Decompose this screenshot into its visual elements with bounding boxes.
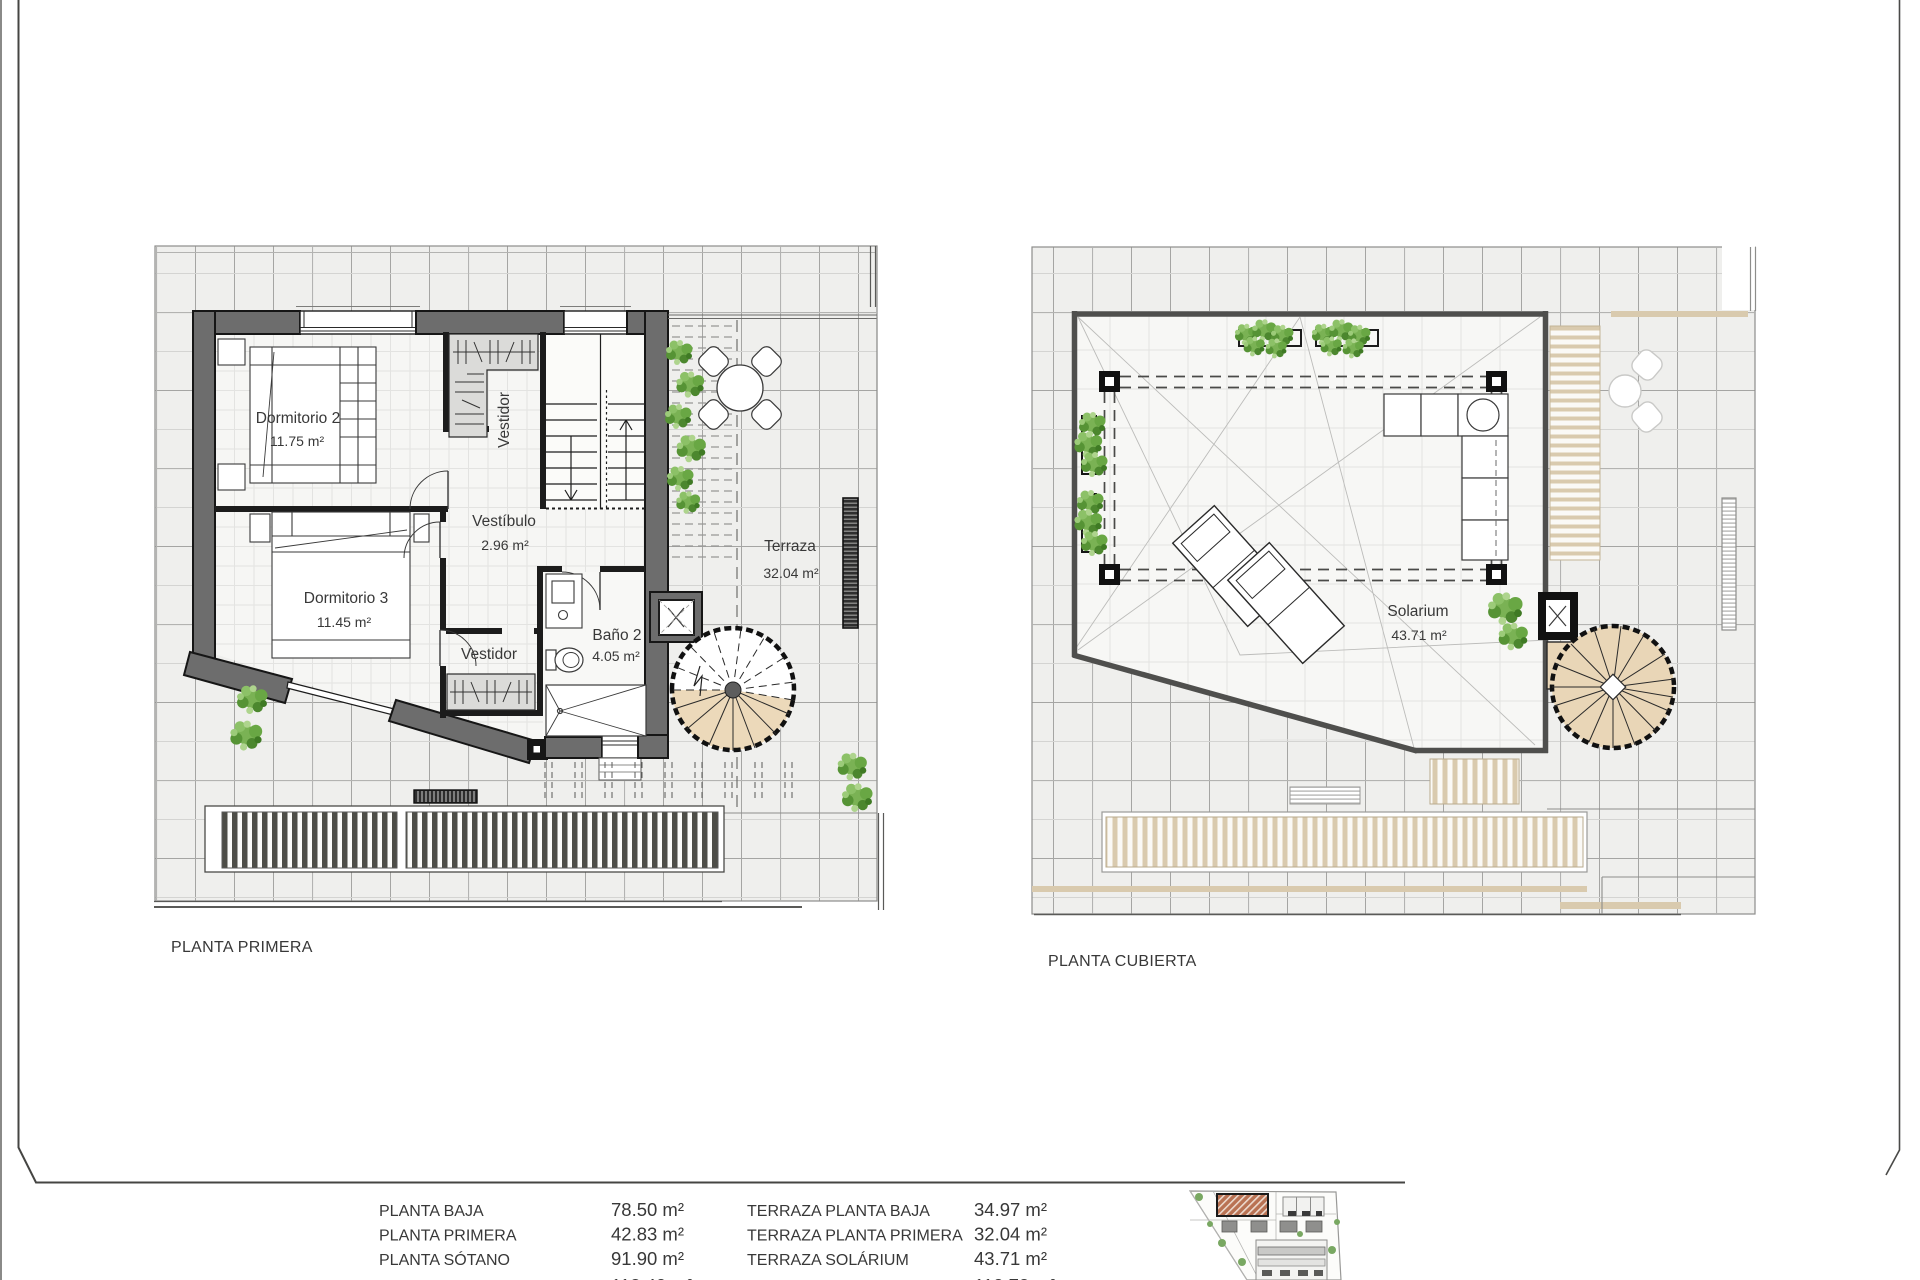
svg-text:32.04 m²: 32.04 m²: [974, 1224, 1047, 1245]
svg-text:PLANTA CUBIERTA: PLANTA CUBIERTA: [1048, 953, 1197, 970]
svg-text:43.71 m²: 43.71 m²: [974, 1248, 1047, 1269]
svg-text:34.97 m²: 34.97 m²: [974, 1199, 1047, 1220]
svg-text:11.75 m²: 11.75 m²: [270, 433, 325, 449]
svg-text:Dormitorio 2: Dormitorio 2: [256, 410, 340, 427]
svg-text:113.40 m²: 113.40 m²: [611, 1275, 693, 1280]
svg-text:42.83 m²: 42.83 m²: [611, 1224, 684, 1245]
svg-text:11.45 m²: 11.45 m²: [317, 614, 372, 630]
svg-text:Vestidor: Vestidor: [496, 392, 513, 448]
svg-text:TERRAZA PLANTA BAJA: TERRAZA PLANTA BAJA: [747, 1203, 930, 1220]
svg-text:32.04 m²: 32.04 m²: [763, 565, 819, 581]
svg-text:78.50 m²: 78.50 m²: [611, 1199, 684, 1220]
svg-text:91.90 m²: 91.90 m²: [611, 1248, 684, 1269]
svg-text:2.96 m²: 2.96 m²: [481, 537, 529, 553]
svg-text:4.05 m²: 4.05 m²: [592, 648, 640, 664]
svg-text:Baño 2: Baño 2: [592, 627, 641, 644]
svg-text:PLANTA BAJA: PLANTA BAJA: [379, 1203, 484, 1220]
svg-text:TERRAZA SOLÁRIUM: TERRAZA SOLÁRIUM: [747, 1250, 909, 1269]
svg-text:Dormitorio 3: Dormitorio 3: [304, 590, 388, 607]
svg-text:Vestíbulo: Vestíbulo: [472, 513, 536, 530]
svg-text:43.71 m²: 43.71 m²: [1391, 627, 1447, 643]
svg-text:Terraza: Terraza: [764, 538, 816, 555]
svg-text:Vestidor: Vestidor: [461, 646, 517, 663]
svg-text:110.72 m²: 110.72 m²: [974, 1275, 1056, 1280]
svg-text:TERRAZA PLANTA PRIMERA: TERRAZA PLANTA PRIMERA: [747, 1228, 963, 1245]
svg-text:PLANTA SÓTANO: PLANTA SÓTANO: [379, 1250, 510, 1269]
svg-text:PLANTA PRIMERA: PLANTA PRIMERA: [171, 939, 313, 956]
svg-text:Solarium: Solarium: [1387, 603, 1448, 620]
svg-text:PLANTA PRIMERA: PLANTA PRIMERA: [379, 1228, 517, 1245]
